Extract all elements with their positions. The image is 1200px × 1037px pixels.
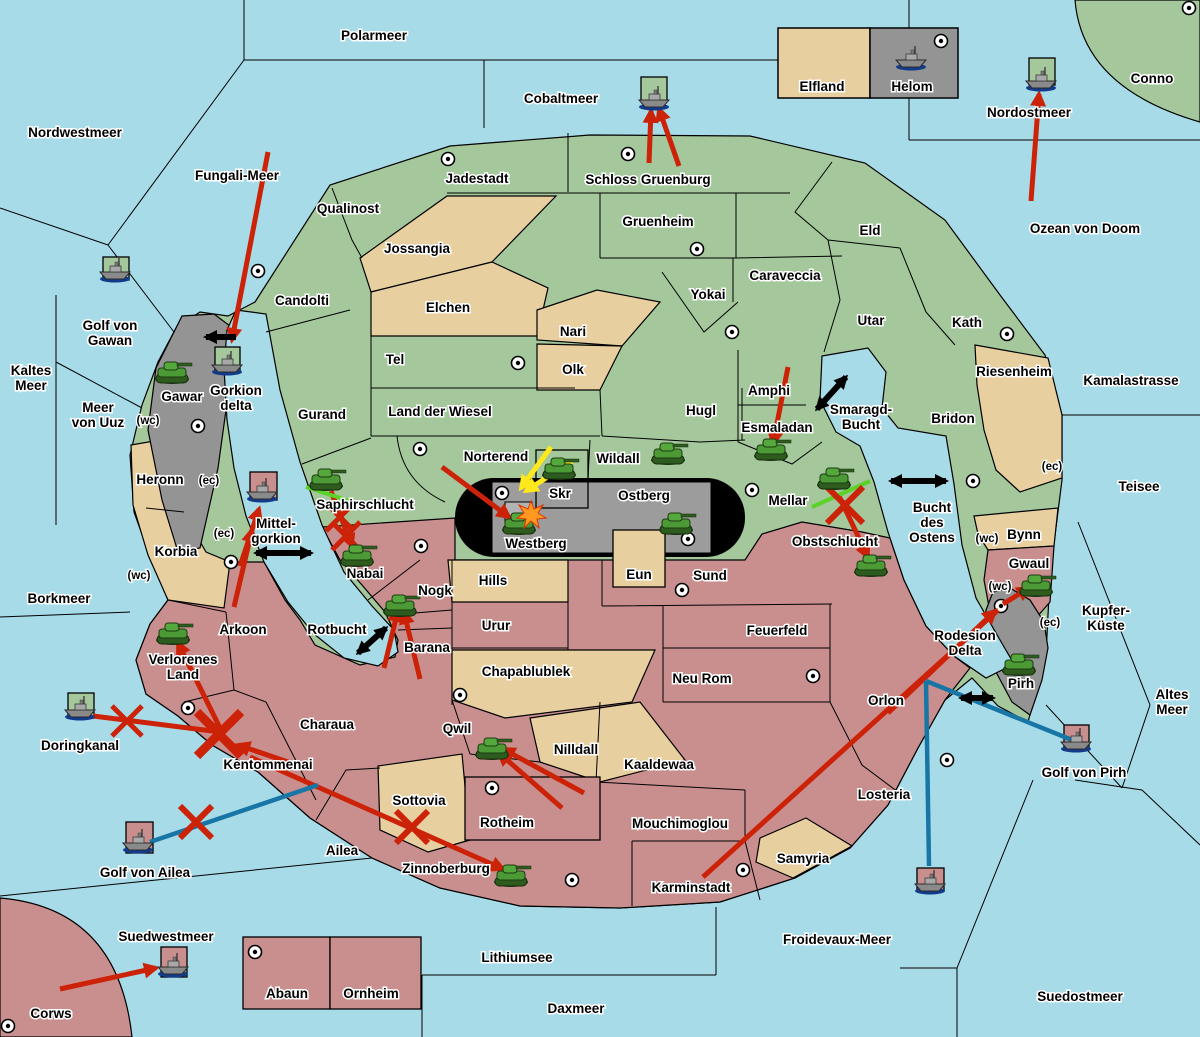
map-label-kaltes-meer: KaltesMeer bbox=[11, 363, 52, 393]
city-dot bbox=[622, 148, 635, 161]
map-label-golf-von-gawan: Golf vonGawan bbox=[83, 318, 138, 348]
coast-marker: (wc) bbox=[128, 570, 151, 582]
map-label-yokai: Yokai bbox=[690, 287, 725, 302]
city-dot bbox=[252, 265, 265, 278]
map-label-losteria: Losteria bbox=[858, 787, 911, 802]
map-label-esmaladan: Esmaladan bbox=[741, 420, 812, 435]
map-label-rotheim: Rotheim bbox=[480, 815, 534, 830]
map-label-nogk: Nogk bbox=[418, 583, 452, 598]
coast-marker: (ec) bbox=[214, 528, 235, 540]
map-label-conno: Conno bbox=[1131, 71, 1174, 86]
map-label-neu-rom: Neu Rom bbox=[672, 671, 731, 686]
map-label-corws: Corws bbox=[30, 1006, 71, 1021]
map-label-gwaul: Gwaul bbox=[1009, 556, 1050, 571]
map-label-nilldall: Nilldall bbox=[554, 742, 598, 757]
map-label-kupfer-kueste: Kupfer-Küste bbox=[1082, 603, 1130, 633]
map-label-ailea: Ailea bbox=[326, 843, 359, 858]
coast-marker: (wc) bbox=[989, 581, 1012, 593]
city-dot bbox=[676, 584, 689, 597]
map-canvas: PolarmeerNordwestmeerCobaltmeerFungali-M… bbox=[0, 0, 1200, 1037]
map-label-land-der-wiesel: Land der Wiesel bbox=[388, 404, 491, 419]
city-dot bbox=[935, 35, 948, 48]
city-dot bbox=[512, 357, 525, 370]
map-label-kaaldewaa: Kaaldewaa bbox=[624, 757, 694, 772]
map-label-sottovia: Sottovia bbox=[392, 793, 446, 808]
city-dot bbox=[496, 487, 509, 500]
map-label-kath: Kath bbox=[952, 315, 982, 330]
map-label-cobaltmeer: Cobaltmeer bbox=[524, 91, 599, 106]
map-label-kamalastrasse: Kamalastrasse bbox=[1083, 373, 1179, 388]
map-label-elfland: Elfland bbox=[799, 79, 844, 94]
map-label-saphirschlucht: Saphirschlucht bbox=[316, 497, 414, 512]
map-label-arkoon: Arkoon bbox=[219, 622, 266, 637]
map-label-daxmeer: Daxmeer bbox=[547, 1001, 605, 1016]
map-label-karminstadt: Karminstadt bbox=[652, 880, 731, 895]
convoy-line bbox=[926, 681, 929, 866]
map-label-gawar: Gawar bbox=[161, 389, 203, 404]
map-label-elchen: Elchen bbox=[426, 300, 470, 315]
map-label-jossangia: Jossangia bbox=[384, 241, 451, 256]
city-dot bbox=[2, 1020, 15, 1033]
city-dot bbox=[249, 946, 262, 959]
map-label-feuerfeld: Feuerfeld bbox=[747, 623, 808, 638]
map-label-fungali-meer: Fungali-Meer bbox=[195, 168, 280, 183]
map-label-utar: Utar bbox=[857, 313, 885, 328]
map-label-nordwestmeer: Nordwestmeer bbox=[28, 125, 123, 140]
map-label-froidevaux-meer: Froidevaux-Meer bbox=[783, 932, 892, 947]
city-dot bbox=[182, 702, 195, 715]
map-label-borkmeer: Borkmeer bbox=[27, 591, 91, 606]
attack-arrow bbox=[649, 111, 651, 163]
map-label-nabai: Nabai bbox=[347, 566, 384, 581]
map-label-chapablublek: Chapablublek bbox=[482, 664, 571, 679]
map-label-urur: Urur bbox=[482, 618, 511, 633]
map-label-korbia: Korbia bbox=[155, 544, 198, 559]
city-dot bbox=[726, 326, 739, 339]
map-label-teisee: Teisee bbox=[1118, 479, 1160, 494]
map-label-heronn: Heronn bbox=[136, 472, 183, 487]
city-dot bbox=[225, 556, 238, 569]
coast-marker: (ec) bbox=[199, 475, 220, 487]
city-dot bbox=[192, 420, 205, 433]
map-label-suedwestmeer: Suedwestmeer bbox=[118, 929, 214, 944]
map-label-nordostmeer: Nordostmeer bbox=[987, 105, 1072, 120]
map-label-pirh: Pirh bbox=[1008, 676, 1034, 691]
map-label-samyria: Samyria bbox=[777, 851, 830, 866]
map-label-mittelgorkion: Mittel-gorkion bbox=[251, 516, 301, 546]
map-label-skr: Skr bbox=[549, 486, 572, 501]
map-label-riesenheim: Riesenheim bbox=[976, 364, 1052, 379]
map-label-amphi: Amphi bbox=[748, 383, 790, 398]
city-dot bbox=[941, 754, 954, 767]
map-label-gurand: Gurand bbox=[298, 407, 346, 422]
map-label-obstschlucht: Obstschlucht bbox=[792, 534, 879, 549]
map-label-suedostmeer: Suedostmeer bbox=[1037, 989, 1123, 1004]
map-label-mellar: Mellar bbox=[768, 493, 808, 508]
map-label-candolti: Candolti bbox=[275, 293, 329, 308]
map-label-charaua: Charaua bbox=[300, 717, 355, 732]
map-label-wildall: Wildall bbox=[596, 451, 639, 466]
map-label-nari: Nari bbox=[560, 324, 586, 339]
map-label-gruenheim: Gruenheim bbox=[622, 214, 693, 229]
map-label-ostberg: Ostberg bbox=[618, 488, 670, 503]
map-label-polarmeer: Polarmeer bbox=[341, 28, 408, 43]
city-dot bbox=[1001, 328, 1014, 341]
map-label-hills: Hills bbox=[479, 573, 508, 588]
map-label-hugl: Hugl bbox=[686, 403, 716, 418]
map-label-orlon: Orlon bbox=[868, 693, 904, 708]
map-label-golf-von-ailea: Golf von Ailea bbox=[100, 865, 191, 880]
map-label-barana: Barana bbox=[404, 640, 450, 655]
map-label-golf-von-pirh: Golf von Pirh bbox=[1042, 765, 1127, 780]
map-label-qualinost: Qualinost bbox=[317, 201, 380, 216]
map-label-helom: Helom bbox=[891, 79, 932, 94]
map-label-mouchimoglou: Mouchimoglou bbox=[632, 816, 728, 831]
map-label-zinnoberburg: Zinnoberburg bbox=[402, 861, 490, 876]
city-dot bbox=[566, 874, 579, 887]
city-dot bbox=[486, 782, 499, 795]
city-dot bbox=[415, 540, 428, 553]
map-label-jadestadt: Jadestadt bbox=[445, 171, 509, 186]
city-dot bbox=[807, 670, 820, 683]
map-label-qwil: Qwil bbox=[443, 721, 472, 736]
map-label-westberg: Westberg bbox=[505, 536, 566, 551]
coast-marker: (wc) bbox=[976, 533, 999, 545]
map-label-eun: Eun bbox=[626, 567, 652, 582]
map-label-tel: Tel bbox=[386, 352, 405, 367]
map-label-olk: Olk bbox=[562, 362, 584, 377]
city-dot bbox=[442, 153, 455, 166]
map-label-kentommenai: Kentommenai bbox=[223, 757, 312, 772]
city-dot bbox=[691, 243, 704, 256]
map-label-altes-meer: AltesMeer bbox=[1155, 687, 1188, 717]
map-label-bridon: Bridon bbox=[931, 411, 975, 426]
map-label-eld: Eld bbox=[859, 223, 880, 238]
city-dot bbox=[414, 443, 427, 456]
wargame-map: PolarmeerNordwestmeerCobaltmeerFungali-M… bbox=[0, 0, 1200, 1037]
map-label-norterend: Norterend bbox=[464, 449, 529, 464]
map-label-rotbucht: Rotbucht bbox=[307, 622, 367, 637]
coast-marker: (ec) bbox=[1040, 617, 1061, 629]
coast-marker: (ec) bbox=[1042, 461, 1063, 473]
city-dot bbox=[967, 475, 980, 488]
map-label-sund: Sund bbox=[693, 568, 727, 583]
city-dot bbox=[1183, 2, 1196, 15]
city-dot bbox=[737, 864, 750, 877]
map-label-schloss-gruenburg: Schloss Gruenburg bbox=[585, 172, 710, 187]
map-label-caraveccia: Caraveccia bbox=[749, 268, 821, 283]
city-dot bbox=[454, 689, 467, 702]
city-dot bbox=[746, 484, 759, 497]
map-label-abaun: Abaun bbox=[266, 986, 308, 1001]
map-label-ornheim: Ornheim bbox=[343, 986, 399, 1001]
coast-marker: (wc) bbox=[137, 415, 160, 427]
map-label-doringkanal: Doringkanal bbox=[41, 738, 119, 753]
region-hills bbox=[448, 560, 568, 602]
map-label-bynn: Bynn bbox=[1007, 527, 1041, 542]
map-label-ozean-von-doom: Ozean von Doom bbox=[1030, 221, 1140, 236]
map-label-lithiumsee: Lithiumsee bbox=[481, 950, 553, 965]
